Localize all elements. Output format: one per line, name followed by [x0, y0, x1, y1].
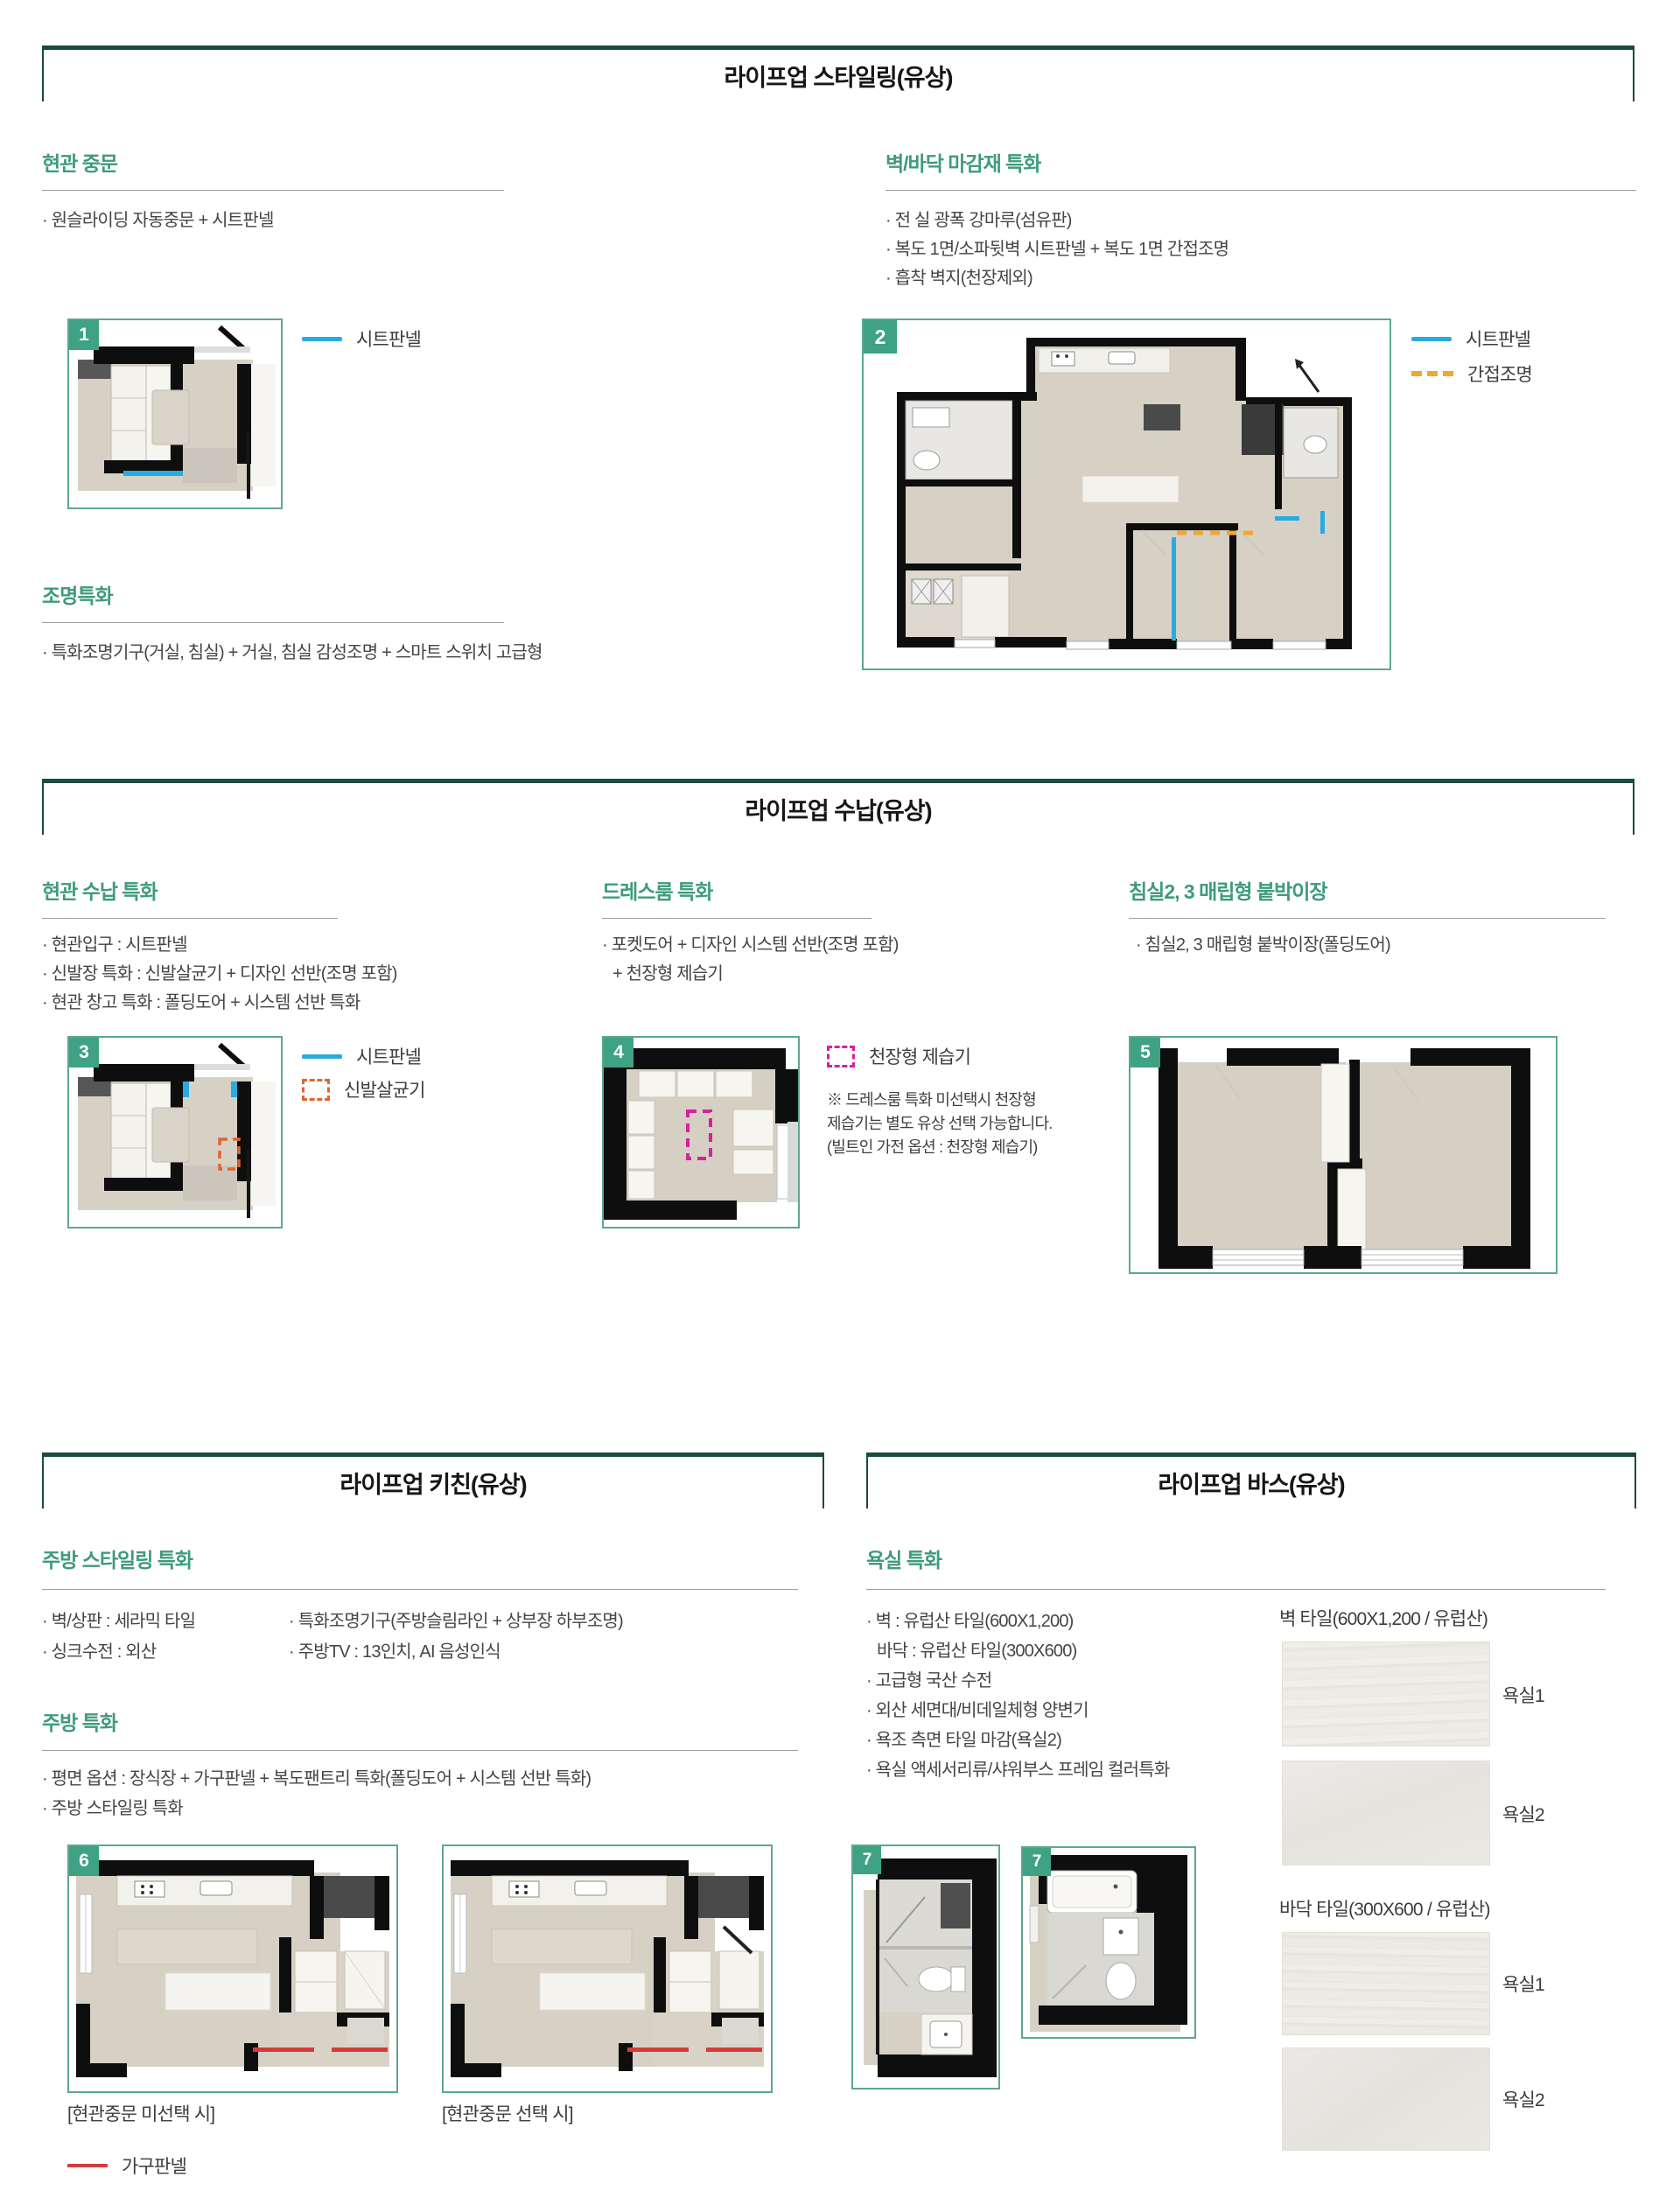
legend-label: 시트판넬 — [356, 325, 421, 352]
plan-number-badge: 3 — [69, 1038, 99, 1067]
bullet-line: · 벽 : 유럽산 타일(600X1,200) — [866, 1606, 1169, 1636]
bullet-line: · 평면 옵션 : 장식장 + 가구판넬 + 복도팬트리 특화(폴딩도어 + 시… — [42, 1764, 591, 1794]
storage-entrance-heading: 현관 수납 특화 — [42, 875, 157, 905]
wall-floor-bullets: · 전 실 광폭 강마루(섬유판) · 복도 1면/소파뒷벽 시트판넬 + 복도… — [885, 206, 1228, 293]
bullet-line: · 흡착 벽지(천장제외) — [885, 264, 1228, 293]
bullet-line: · 포켓도어 + 디자인 시스템 선반(조명 포함) — [602, 931, 899, 960]
floor-plan-7a: 7 — [851, 1844, 1000, 2089]
wall-tile-swatch-bath2 — [1282, 1760, 1490, 1865]
walls — [451, 1860, 689, 1876]
bullet-line: + 천장형 제습기 — [602, 960, 899, 989]
bullet-line: · 현관 창고 특화 : 폴딩도어 + 시스템 선반 특화 — [42, 989, 397, 1018]
divider — [42, 918, 338, 919]
floor-plan-7b-drawing — [1023, 1848, 1194, 2037]
bullet-line: · 신발장 특화 : 신발살균기 + 디자인 선반(조명 포함) — [42, 960, 397, 989]
sheet-panel-line-icon — [302, 1054, 342, 1059]
note-line: 제습기는 별도 유상 선택 가능합니다. — [827, 1112, 1052, 1136]
floor-tile-label: 바닥 타일(300X600 / 유럽산) — [1279, 1895, 1490, 1921]
sheet-panel-mark — [183, 1081, 189, 1097]
bullet-line: · 침실2, 3 매립형 붙박이장(폴딩도어) — [1136, 931, 1390, 960]
floor-plan-1-drawing — [69, 320, 281, 507]
floor-plan-4: 4 — [602, 1036, 800, 1228]
bullet-line: · 외산 세면대/비데일체형 양변기 — [866, 1696, 1169, 1725]
walls — [1158, 1048, 1178, 1251]
divider — [866, 1589, 1606, 1590]
walls — [94, 1064, 194, 1081]
kitchen-styling-heading: 주방 스타일링 특화 — [42, 1543, 192, 1573]
section-storage-title-box: 라이프업 수납(유상) — [42, 779, 1634, 835]
bullet-line: · 고급형 국산 수전 — [866, 1666, 1169, 1696]
bedroom-closet-heading: 침실2, 3 매립형 붙박이장 — [1129, 875, 1327, 905]
legend-label: 시트판넬 — [356, 1043, 421, 1069]
floor-tile-bath1-name: 욕실1 — [1502, 1970, 1544, 1997]
section-kitchen-title: 라이프업 키친(유상) — [339, 1466, 526, 1500]
section-storage-title: 라이프업 수납(유상) — [745, 792, 931, 826]
legend-label: 시트판넬 — [1466, 325, 1530, 352]
storage-entrance-bullets: · 현관입구 : 시트판넬 · 신발장 특화 : 신발살균기 + 디자인 선반(… — [42, 931, 397, 1018]
entrance-door-bullets: · 원슬라이딩 자동중문 + 시트판넬 — [42, 206, 274, 235]
kitchen-special-heading: 주방 특화 — [42, 1706, 117, 1736]
floor-tile-swatch-bath1 — [1282, 1932, 1490, 2035]
floor-plan-6b-drawing — [444, 1846, 771, 2091]
furniture-panel-line-icon — [67, 2164, 108, 2167]
plan-number-badge: 6 — [69, 1846, 99, 1876]
sheet-panel-line-icon — [1411, 337, 1452, 341]
floor-plan-2-drawing — [864, 320, 1389, 668]
bullet-line: · 싱크수전 : 외산 — [42, 1637, 195, 1668]
section-bath-title: 라이프업 바스(유상) — [1158, 1466, 1344, 1500]
dressroom-bullets: · 포켓도어 + 디자인 시스템 선반(조명 포함) + 천장형 제습기 — [602, 931, 899, 989]
options-brochure-page: 라이프업 스타일링(유상) 현관 중문 · 원슬라이딩 자동중문 + 시트판넬 … — [0, 0, 1680, 2212]
bath-special-bullets: · 벽 : 유럽산 타일(600X1,200) 바닥 : 유럽산 타일(300X… — [866, 1606, 1169, 1785]
walls — [94, 346, 194, 364]
floor-plan-5: 5 — [1129, 1036, 1557, 1274]
note-line: ※ 드레스룸 특화 미선택시 천장형 — [827, 1088, 1052, 1112]
bullet-line: · 특화조명기구(주방슬림라인 + 상부장 하부조명) — [289, 1606, 623, 1637]
sheet-panel-mark — [1172, 537, 1176, 640]
floor-plan-6: 6 — [67, 1844, 398, 2093]
legend-sheet-panel-3: 시트판넬 — [302, 1043, 421, 1069]
kitchen-styling-col1: · 벽/상판 : 세라믹 타일 · 싱크수전 : 외산 — [42, 1606, 195, 1668]
floor-plan-2: 2 — [862, 318, 1391, 670]
divider — [42, 1750, 798, 1751]
wall-tile-bath2-name: 욕실2 — [1502, 1801, 1544, 1827]
floor-plan-6b — [442, 1844, 773, 2093]
floor-plan-5-drawing — [1130, 1038, 1556, 1272]
section-styling-title: 라이프업 스타일링(유상) — [724, 59, 953, 93]
legend-label: 가구판넬 — [122, 2152, 186, 2179]
floor-plan-1: 1 — [67, 318, 283, 509]
plan-number-badge: 7 — [853, 1846, 881, 1874]
bullet-line: · 주방TV : 13인치, AI 음성인식 — [289, 1637, 623, 1668]
lighting-heading: 조명특화 — [42, 579, 113, 609]
divider — [1129, 918, 1606, 919]
bullet-line: · 주방 스타일링 특화 — [42, 1794, 591, 1823]
plan6-caption: [현관중문 미선택 시] — [67, 2100, 214, 2126]
lighting-bullets: · 특화조명기구(거실, 침실) + 거실, 침실 감성조명 + 스마트 스위치… — [42, 639, 542, 668]
floor-tile-bath2-name: 욕실2 — [1502, 2086, 1544, 2112]
divider — [42, 1589, 798, 1590]
kitchen-special-bullets: · 평면 옵션 : 장식장 + 가구판넬 + 복도팬트리 특화(폴딩도어 + 시… — [42, 1764, 591, 1823]
dressroom-heading: 드레스룸 특화 — [602, 875, 712, 905]
bullet-line: · 전 실 광폭 강마루(섬유판) — [885, 206, 1228, 235]
sheet-panel-mark — [123, 471, 183, 476]
section-styling-title-box: 라이프업 스타일링(유상) — [42, 45, 1634, 101]
section-bath-title-box: 라이프업 바스(유상) — [866, 1452, 1636, 1508]
plan-number-badge: 5 — [1130, 1038, 1160, 1067]
dehumidifier-dashrect-icon — [827, 1046, 855, 1067]
section-kitchen-title-box: 라이프업 키친(유상) — [42, 1452, 824, 1508]
wall-tile-bath1-name: 욕실1 — [1502, 1682, 1544, 1708]
entrance-door-heading: 현관 중문 — [42, 147, 117, 177]
legend-label: 천장형 제습기 — [869, 1043, 970, 1069]
divider — [42, 622, 504, 623]
divider — [602, 918, 871, 919]
bullet-line: · 벽/상판 : 세라믹 타일 — [42, 1606, 195, 1637]
walls — [1030, 338, 1246, 346]
note-line: (빌트인 가전 옵션 : 천장형 제습기) — [827, 1136, 1052, 1159]
bullet-line: · 현관입구 : 시트판넬 — [42, 931, 397, 960]
plan6b-caption: [현관중문 선택 시] — [442, 2100, 573, 2126]
divider — [42, 190, 504, 191]
floor-plan-7b: 7 — [1021, 1846, 1196, 2039]
wall-floor-heading: 벽/바닥 마감재 특화 — [885, 147, 1040, 177]
legend-indirect-light: 간접조명 — [1411, 360, 1532, 387]
dressroom-note: ※ 드레스룸 특화 미선택시 천장형 제습기는 별도 유상 선택 가능합니다. … — [827, 1088, 1052, 1159]
legend-furniture-panel: 가구판넬 — [67, 2152, 186, 2179]
plan-number-badge: 7 — [1023, 1848, 1051, 1876]
shoe-sterilizer-dashrect-icon — [302, 1079, 330, 1101]
wall-tile-swatch-bath1 — [1282, 1641, 1490, 1746]
floor-plan-3: 3 — [67, 1036, 283, 1228]
legend-label: 신발살균기 — [344, 1076, 425, 1102]
bedroom-closet-bullets: · 침실2, 3 매립형 붙박이장(폴딩도어) — [1136, 931, 1390, 960]
sheet-panel-line-icon — [302, 337, 342, 341]
bullet-line: · 원슬라이딩 자동중문 + 시트판넬 — [42, 206, 274, 235]
bullet-line: · 욕조 측면 타일 마감(욕실2) — [866, 1725, 1169, 1755]
bath-special-heading: 욕실 특화 — [866, 1543, 941, 1573]
legend-label: 간접조명 — [1467, 360, 1532, 387]
furniture-panel-mark — [253, 2047, 314, 2052]
legend-sheet-panel-2: 시트판넬 — [1411, 325, 1530, 352]
walls — [76, 1860, 314, 1876]
floor-plan-6-drawing — [69, 1846, 396, 2091]
floor-plan-7a-drawing — [853, 1846, 998, 2088]
bullet-line: · 특화조명기구(거실, 침실) + 거실, 침실 감성조명 + 스마트 스위치… — [42, 639, 542, 668]
bullet-line: 바닥 : 유럽산 타일(300X600) — [866, 1636, 1169, 1666]
plan-number-badge: 2 — [864, 320, 897, 353]
bullet-line: · 욕실 액세서리류/샤워부스 프레임 컬러특화 — [866, 1755, 1169, 1785]
plan-number-badge: 1 — [69, 320, 99, 350]
legend-shoe-sterilizer: 신발살균기 — [302, 1076, 425, 1102]
walls — [878, 1858, 988, 1879]
wall-tile-label: 벽 타일(600X1,200 / 유럽산) — [1279, 1605, 1487, 1631]
plan-number-badge: 4 — [604, 1038, 633, 1067]
floor — [1178, 1062, 1346, 1251]
indirect-light-dash-icon — [1411, 371, 1453, 376]
kitchen-styling-col2: · 특화조명기구(주방슬림라인 + 상부장 하부조명) · 주방TV : 13인… — [289, 1606, 623, 1668]
furniture-panel-mark — [627, 2047, 689, 2052]
floor-plan-3-drawing — [69, 1038, 281, 1227]
floor-tile-swatch-bath2 — [1282, 2047, 1490, 2151]
divider — [885, 190, 1636, 191]
legend-dehumidifier: 천장형 제습기 — [827, 1043, 970, 1069]
legend-sheet-panel: 시트판넬 — [302, 325, 421, 352]
bullet-line: · 복도 1면/소파뒷벽 시트판넬 + 복도 1면 간접조명 — [885, 235, 1228, 264]
